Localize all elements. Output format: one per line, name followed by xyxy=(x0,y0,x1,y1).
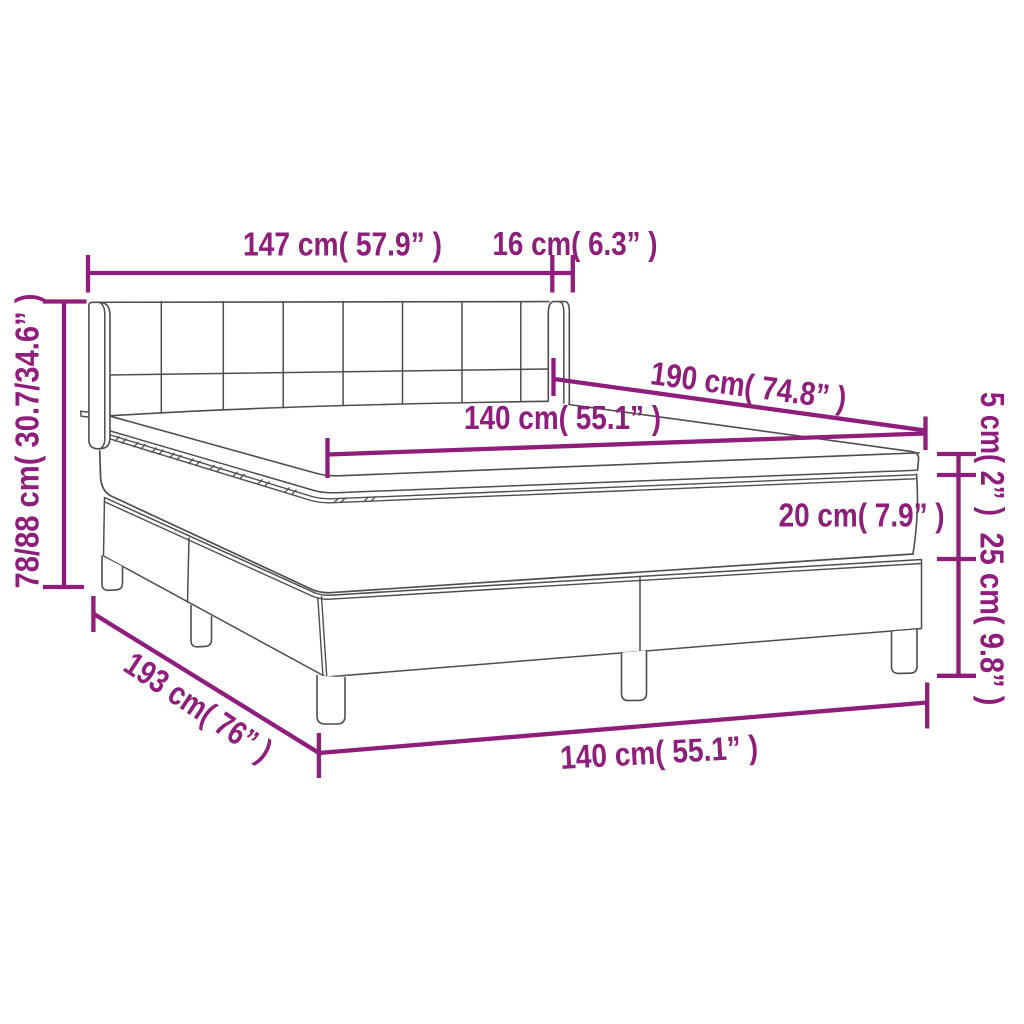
svg-text:5 cm( 2” ): 5 cm( 2” ) xyxy=(974,392,1011,516)
svg-text:25 cm( 9.8” ): 25 cm( 9.8” ) xyxy=(974,533,1011,706)
svg-text:140 cm( 55.1” ): 140 cm( 55.1” ) xyxy=(559,728,759,776)
svg-text:78/88 cm( 30.7/34.6” ): 78/88 cm( 30.7/34.6” ) xyxy=(9,294,46,589)
svg-text:193 cm( 76” ): 193 cm( 76” ) xyxy=(118,645,279,769)
svg-text:16 cm( 6.3” ): 16 cm( 6.3” ) xyxy=(493,225,658,262)
svg-text:140 cm( 55.1” ): 140 cm( 55.1” ) xyxy=(464,399,661,436)
svg-text:20 cm( 7.9” ): 20 cm( 7.9” ) xyxy=(779,497,945,534)
svg-text:147 cm( 57.9” ): 147 cm( 57.9” ) xyxy=(243,226,442,263)
